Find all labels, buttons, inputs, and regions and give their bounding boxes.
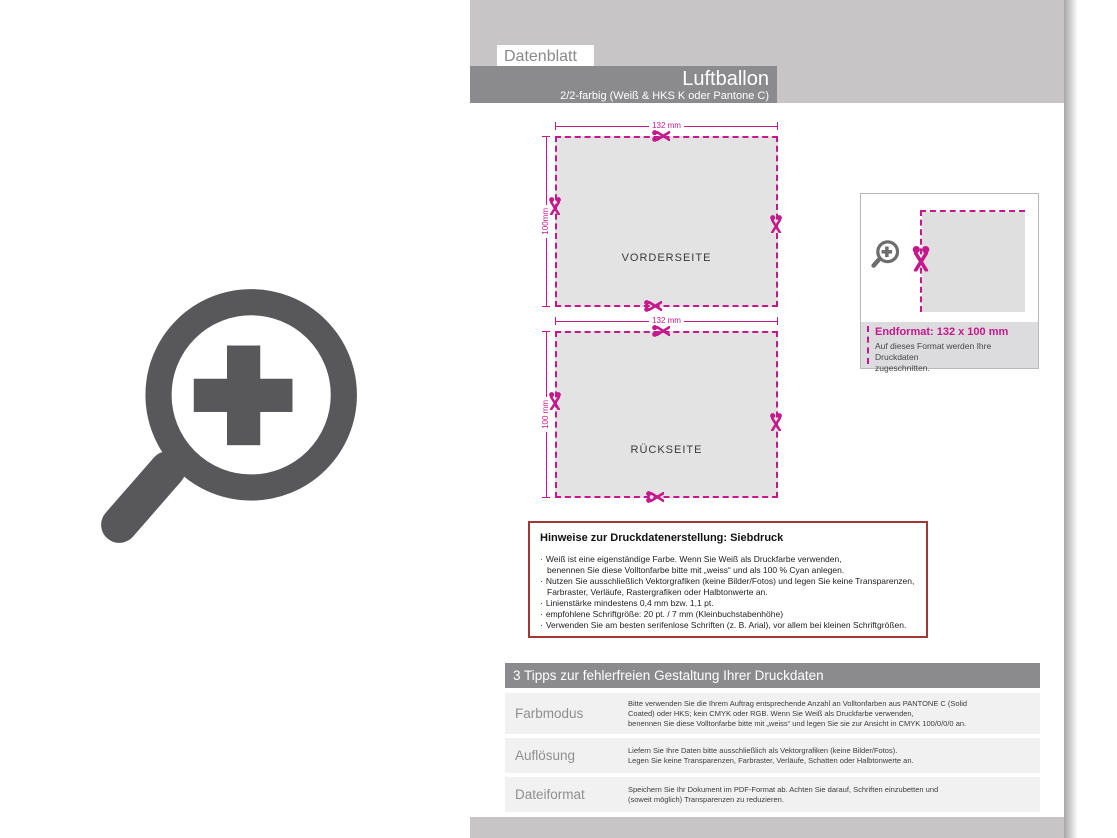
scissors-icon (652, 130, 670, 142)
back-side-area (555, 331, 778, 498)
note-bullet: Verwenden Sie am besten serifenlose Schr… (540, 620, 916, 631)
product-title: Luftballon (470, 68, 769, 90)
tip-row-description: Liefern Sie Ihre Daten bitte ausschließl… (628, 746, 922, 766)
tip-row-description: Speichern Sie Ihr Dokument im PDF-Format… (628, 785, 946, 805)
tip-row-aufloesung: Auflösung Liefern Sie Ihre Daten bitte a… (505, 738, 1040, 773)
page-edge-shadow (1064, 0, 1078, 838)
tip-row-farbmodus: Farbmodus Bitte verwenden Sie die Ihrem … (505, 693, 1040, 734)
datenblatt-tab: Datenblatt (497, 45, 594, 68)
height-dimension-back: 100 mm (542, 331, 550, 498)
scissors-icon (913, 246, 930, 272)
scissors-icon (644, 300, 662, 312)
height-dimension-front: 100mm (542, 136, 550, 307)
width-dimension-back: 132 mm (555, 317, 778, 325)
note-bullet: Weiß ist eine eigenständige Farbe. Wenn … (540, 554, 916, 576)
scissors-icon (549, 392, 561, 410)
tip-row-description: Bitte verwenden Sie die Ihrem Auftrag en… (628, 699, 975, 729)
cut-line-caption (867, 326, 869, 364)
endformat-title: Endformat: 132 x 100 mm (875, 326, 1035, 339)
scissors-icon (646, 491, 664, 503)
back-side-label: RÜCKSEITE (555, 444, 778, 456)
scissors-icon (770, 413, 782, 431)
product-title-bar: Luftballon 2/2-farbig (Weiß & HKS K oder… (470, 66, 777, 103)
note-bullet: Nutzen Sie ausschließlich Vektorgrafiken… (540, 576, 916, 598)
product-subtitle: 2/2-farbig (Weiß & HKS K oder Pantone C) (470, 90, 769, 103)
front-side-label: VORDERSEITE (555, 252, 778, 264)
magnifier-icon (871, 239, 899, 269)
width-dimension-front-label: 132 mm (649, 122, 684, 130)
width-dimension-front: 132 mm (555, 122, 778, 130)
scissors-icon (549, 197, 561, 215)
page-bottom-band (470, 817, 1064, 838)
tip-row-label: Auflösung (505, 748, 628, 763)
tip-row-dateiformat: Dateiformat Speichern Sie Ihr Dokument i… (505, 777, 1040, 812)
endformat-line2: zugeschnitten. (875, 363, 930, 373)
tips-section-header: 3 Tipps zur fehlerfreien Gestaltung Ihre… (505, 663, 1040, 688)
cut-line-horizontal (920, 210, 1025, 212)
datasheet-page: Datenblatt Luftballon 2/2-farbig (Weiß &… (0, 0, 1117, 838)
note-bullet: empfohlene Schriftgröße: 20 pt. / 7 mm (… (540, 609, 916, 620)
note-bullet: Linienstärke mindestens 0,4 mm bzw. 1,1 … (540, 598, 916, 609)
zoom-plus-icon[interactable] (95, 275, 357, 557)
endformat-area-swatch (922, 212, 1025, 312)
endformat-line1: Auf dieses Format werden Ihre Druckdaten (875, 341, 991, 362)
print-data-notes-box: Hinweise zur Druckdatenerstellung: Siebd… (528, 521, 928, 638)
scissors-icon (652, 325, 670, 337)
front-side-area (555, 136, 778, 307)
width-dimension-back-label: 132 mm (649, 317, 684, 325)
scissors-icon (770, 215, 782, 233)
tip-row-label: Farbmodus (505, 706, 628, 721)
notes-title: Hinweise zur Druckdatenerstellung: Siebd… (540, 532, 916, 544)
tip-row-label: Dateiformat (505, 787, 628, 802)
